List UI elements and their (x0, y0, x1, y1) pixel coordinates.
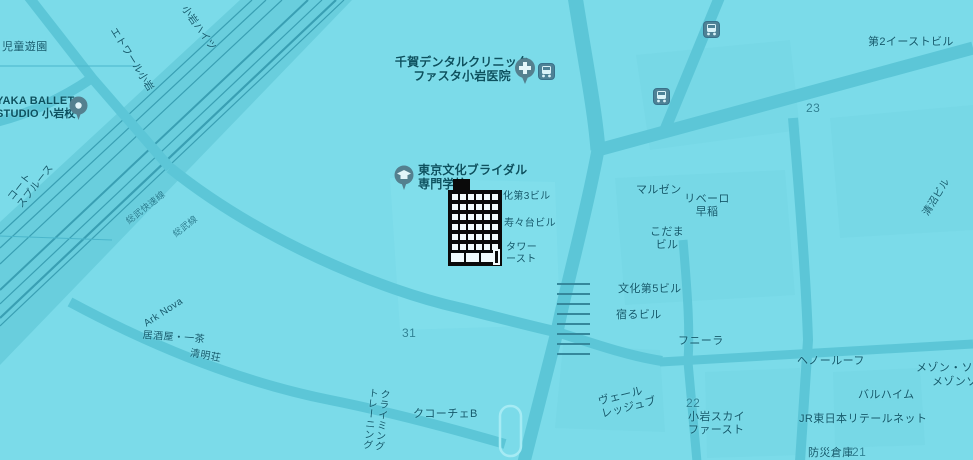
hospital-pin-icon[interactable] (514, 57, 536, 90)
transit-stop-icon-2[interactable] (653, 88, 670, 110)
map-canvas[interactable]: 児童遊園YAKA BALLETSTUDIO 小岩校コートスプルースエトワール小岩… (0, 0, 973, 460)
place-pin-icon[interactable] (69, 96, 88, 126)
school-pin-icon[interactable] (394, 165, 414, 196)
transit-stop-icon-3[interactable] (703, 21, 720, 43)
building-icon[interactable] (447, 177, 503, 269)
transit-stop-icon[interactable] (538, 63, 555, 85)
